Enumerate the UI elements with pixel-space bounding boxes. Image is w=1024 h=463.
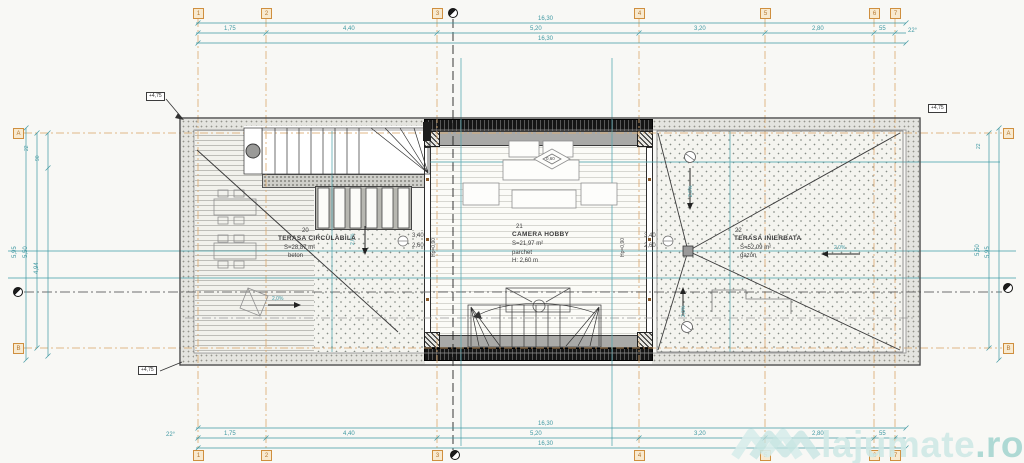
grid-marker: 6 xyxy=(869,8,880,19)
grid-marker: A xyxy=(1003,128,1014,139)
level-stamp: +4,75 xyxy=(928,104,947,113)
dim-label: 16,30 xyxy=(538,421,553,427)
room-finish: beton xyxy=(288,253,303,259)
grid-marker: 3 xyxy=(432,8,443,19)
dim-label: 16,30 xyxy=(538,16,553,22)
watermark-text: lajumate.ro xyxy=(821,424,1024,463)
grid-marker: 5 xyxy=(760,8,771,19)
grid-marker: 2 xyxy=(261,8,272,19)
dim-label: 4,40 xyxy=(343,431,355,437)
grid-marker: 1 xyxy=(193,8,204,19)
grid-marker: 7 xyxy=(890,8,901,19)
room-area: S=21,97 m² xyxy=(512,241,543,247)
room-name: TERASA INIERBATA xyxy=(734,236,802,243)
slope-label: 2,0% xyxy=(834,246,845,251)
dim-label: 5,20 xyxy=(530,26,542,32)
room-name: TERASA CIRCULABILA xyxy=(278,236,356,243)
section-marker-icon xyxy=(1003,283,1013,293)
room-finish: parchet xyxy=(512,250,532,256)
parapet-label: Hp=0,90 xyxy=(432,238,437,257)
dim-label: 16,30 xyxy=(538,441,553,447)
grid-marker: 1 xyxy=(193,450,204,461)
dim-label: 3,20 xyxy=(694,431,706,437)
room-finish: gazon xyxy=(740,253,756,259)
section-marker-icon xyxy=(448,8,458,18)
dim-label: 55 xyxy=(879,26,886,32)
dim-label: 3,40 xyxy=(412,233,424,239)
slope-label: 2,0% xyxy=(689,186,694,197)
dim-label: 3,40 xyxy=(644,233,656,239)
watermark: lajumate.ro xyxy=(729,423,1024,463)
grid-marker: A xyxy=(13,128,24,139)
dim-label: 5,20 xyxy=(530,431,542,437)
dim-label: 22° xyxy=(908,28,917,34)
floor-plan-drawing: 1 2 3 4 5 6 7 1 2 3 4 5 6 7 A B A B 16,3… xyxy=(0,0,1024,463)
grid-marker: 2 xyxy=(261,450,272,461)
dim-label: 90 xyxy=(36,155,41,161)
dim-label: 5,95 xyxy=(12,246,18,258)
slope-label: 2,0% xyxy=(682,306,687,317)
dim-label: 1,75 xyxy=(224,26,236,32)
watermark-logo-icon xyxy=(729,423,821,463)
grid-marker: 4 xyxy=(634,8,645,19)
dim-label: 2,60 xyxy=(412,243,424,249)
dim-label: 1,75 xyxy=(224,431,236,437)
dim-label: 22 xyxy=(977,143,982,149)
room-number: 20 xyxy=(302,228,309,234)
room-number: 22 xyxy=(735,228,742,234)
dim-label: 5,95 xyxy=(985,246,991,258)
dim-label: 3,20 xyxy=(694,26,706,32)
dim-label: 5,50 xyxy=(975,244,981,256)
room-name: CAMERA HOBBY xyxy=(512,232,569,239)
skylight-label: 0,60 xyxy=(546,157,555,162)
grid-marker: B xyxy=(13,343,24,354)
level-stamp: +4,75 xyxy=(146,92,165,101)
dim-label: 22° xyxy=(166,432,175,438)
room-height: H: 2,60 m xyxy=(512,258,538,264)
dim-label: 22 xyxy=(25,145,30,151)
room-number: 21 xyxy=(516,224,523,230)
level-stamp: +4,75 xyxy=(138,366,157,375)
grid-marker: 3 xyxy=(432,450,443,461)
slope-label: 2,0% xyxy=(272,297,283,302)
dim-label: 5,50 xyxy=(23,246,29,258)
room-area: S=52,09 m² xyxy=(740,245,771,251)
grid-marker: 4 xyxy=(634,450,645,461)
dim-label: 2,80 xyxy=(812,26,824,32)
dim-label: 4,94 xyxy=(34,262,40,274)
dim-label: 4,40 xyxy=(343,26,355,32)
section-marker-icon xyxy=(450,450,460,460)
grid-marker: B xyxy=(1003,343,1014,354)
dim-label: 2,60 xyxy=(644,243,656,249)
room-area: S=28,87 m² xyxy=(284,245,315,251)
section-marker-icon xyxy=(13,287,23,297)
dim-label: 16,30 xyxy=(538,36,553,42)
parapet-label: Hp=0,90 xyxy=(621,238,626,257)
